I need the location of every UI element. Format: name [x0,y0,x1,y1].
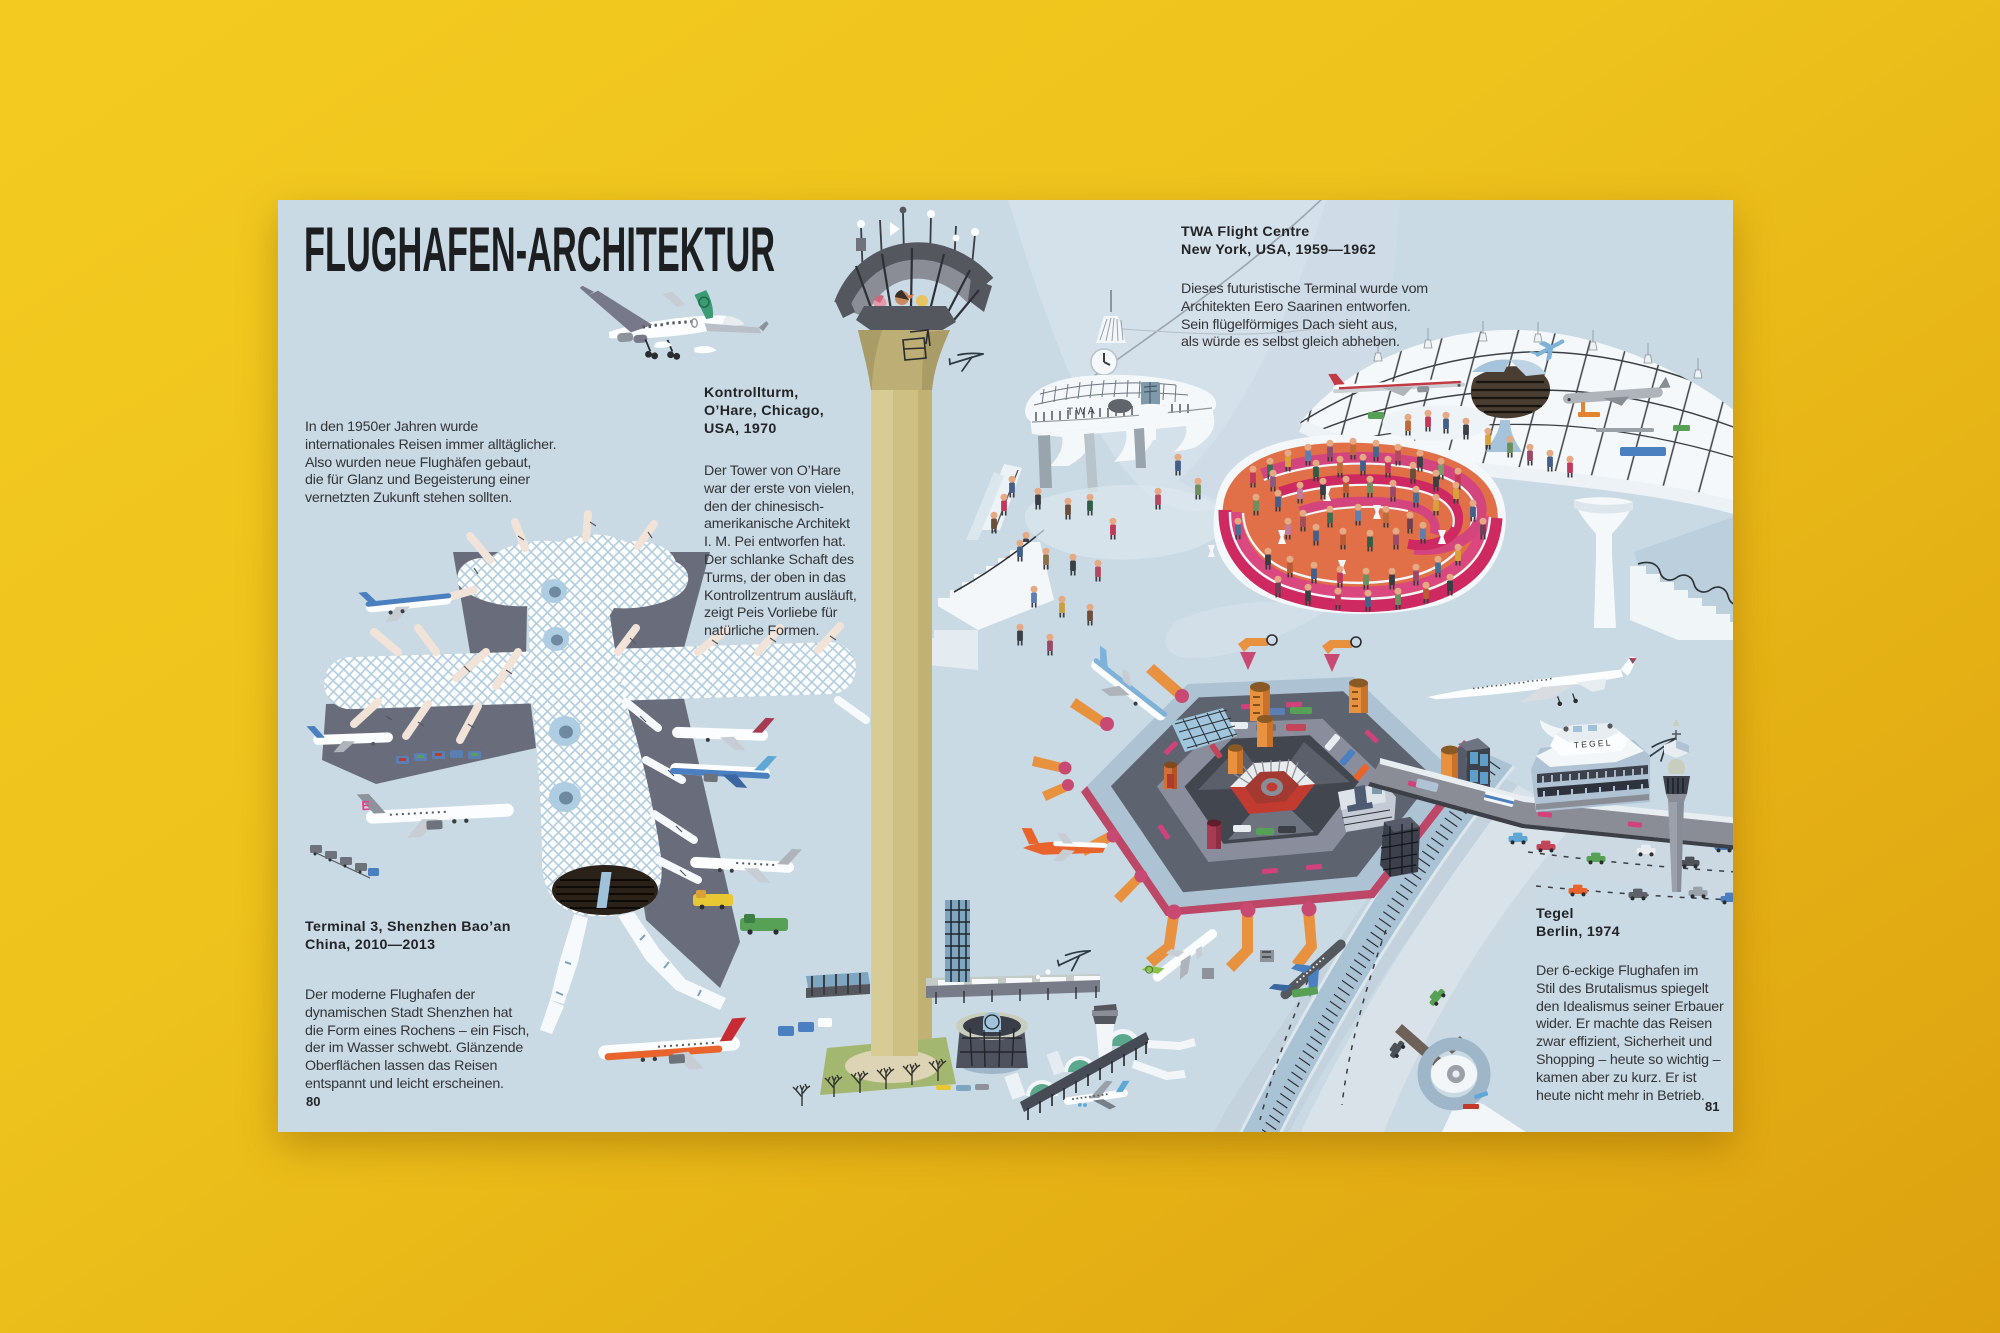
svg-text:E: E [361,798,371,813]
svg-text:TWA: TWA [1067,405,1098,418]
